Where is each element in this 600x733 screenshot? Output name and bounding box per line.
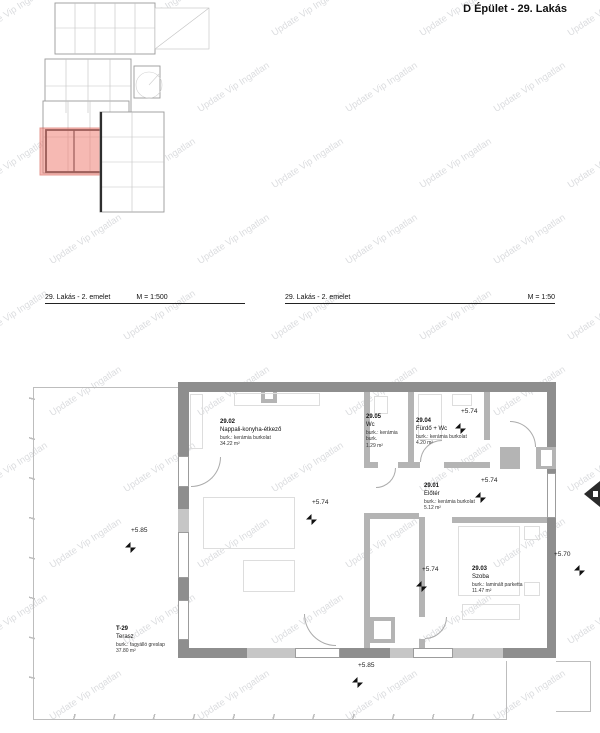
- room-id: 29.03: [472, 566, 567, 574]
- elevation-marker: +5.74: [455, 421, 466, 432]
- highlight-region: [40, 128, 110, 175]
- room-name: Előtér: [424, 491, 519, 499]
- exterior-wall: [178, 578, 189, 600]
- elevation-label: +5.85: [131, 527, 147, 534]
- furniture-outline: [374, 396, 388, 414]
- room-finish: burk.: kerámia burk.: [366, 430, 408, 443]
- furniture-outline: [462, 604, 520, 620]
- terrace-line: [506, 661, 507, 720]
- room-name: Terasz: [116, 634, 211, 642]
- furniture-outline: [452, 394, 472, 406]
- exterior-wall: [178, 487, 189, 509]
- door-arc: [376, 468, 396, 488]
- room-label-nappali: 29.02 Nappali-konyha-étkező burk.: kerám…: [220, 419, 315, 448]
- elevation-bowtie-icon: [125, 542, 136, 553]
- elevation-marker: +5.85: [352, 675, 363, 686]
- room-area: 5.12 m²: [424, 505, 519, 512]
- room-area: 1.29 m²: [366, 443, 408, 450]
- elevation-label: +5.85: [358, 662, 374, 669]
- door-arc: [191, 457, 221, 487]
- room-id: 29.05: [366, 414, 408, 422]
- window: [178, 532, 189, 578]
- room-name: Wc: [366, 422, 408, 430]
- page-title: D Épület - 29. Lakás: [463, 3, 567, 15]
- elevation-label: +5.74: [481, 477, 497, 484]
- elevation-marker: +5.85: [125, 540, 136, 551]
- caption-label: 29. Lakás - 2. emelet: [285, 294, 350, 301]
- exterior-wall-light: [390, 648, 413, 658]
- elevation-bowtie-icon: [455, 423, 466, 434]
- elevation-bowtie-icon: [475, 492, 486, 503]
- exterior-wall-light: [453, 648, 503, 658]
- elevation-marker: +5.74: [475, 490, 486, 501]
- room-id: T-29: [116, 626, 211, 634]
- interior-wall: [500, 447, 520, 469]
- wall-opening: [541, 450, 552, 466]
- terrace-line: [556, 661, 590, 662]
- furniture-outline: [524, 526, 540, 540]
- caption-scale: M = 1:500: [136, 294, 167, 301]
- interior-wall: [370, 513, 419, 519]
- furniture-outline: [234, 393, 320, 406]
- exterior-wall-light: [178, 509, 189, 532]
- elevation-label: +5.74: [312, 499, 328, 506]
- room-name: Fürdő + Wc: [416, 426, 480, 434]
- door-arc: [304, 614, 336, 646]
- room-area: 11.47 m²: [472, 588, 567, 595]
- room-id: 29.02: [220, 419, 315, 427]
- elevation-marker: +5.74: [306, 512, 317, 523]
- elevation-bowtie-icon: [574, 565, 585, 576]
- room-label-szoba: 29.03 Szoba burk.: laminált parketta 11.…: [472, 566, 567, 595]
- furniture-outline: [243, 560, 295, 592]
- room-label-terasz: T-29 Terasz burk.: fagyálló greslap 37.8…: [116, 626, 211, 655]
- room-name: Szoba: [472, 574, 567, 582]
- dimension-ticks: [29, 390, 35, 716]
- room-area: 37.80 m²: [116, 648, 211, 655]
- caption-overview: 29. Lakás - 2. emelet M = 1:500: [45, 294, 245, 304]
- room-label-wc: 29.05 Wc burk.: kerámia burk. 1.29 m²: [366, 414, 408, 449]
- exterior-wall: [340, 648, 390, 658]
- interior-wall: [444, 462, 490, 468]
- caption-main: 29. Lakás - 2. emelet M = 1:50: [285, 294, 555, 304]
- exterior-wall: [178, 382, 189, 456]
- exterior-wall-light: [247, 648, 295, 658]
- room-name: Nappali-konyha-étkező: [220, 427, 315, 435]
- elevation-label: +5.74: [461, 408, 477, 415]
- wall-opening: [374, 621, 391, 639]
- interior-wall: [452, 517, 547, 523]
- terrace-line: [556, 711, 591, 712]
- floor-plan-sheet: Update Vip IngatlanUpdate Vip IngatlanUp…: [0, 0, 600, 733]
- room-id: 29.04: [416, 418, 480, 426]
- dimension-ticks: [36, 714, 504, 720]
- elevation-marker: +5.74: [416, 579, 427, 590]
- door-arc: [510, 421, 536, 447]
- exterior-wall: [178, 382, 556, 392]
- elevation-marker: +5.70: [574, 563, 585, 574]
- furniture-outline: [203, 497, 295, 549]
- interior-wall: [419, 639, 425, 648]
- door-arc: [425, 617, 447, 639]
- elevation-label: +5.74: [422, 566, 438, 573]
- room-area: 4.20 m²: [416, 440, 480, 447]
- elevation-bowtie-icon: [306, 514, 317, 525]
- terrace-line: [590, 661, 591, 712]
- room-label-furdo: 29.04 Fürdő + Wc burk.: kerámia burkolat…: [416, 418, 480, 447]
- interior-wall: [484, 392, 490, 440]
- caption-label: 29. Lakás - 2. emelet: [45, 294, 110, 301]
- window: [178, 456, 189, 487]
- window: [413, 648, 453, 658]
- elevation-label: +5.70: [554, 551, 570, 558]
- window: [295, 648, 340, 658]
- furniture-outline: [190, 394, 203, 449]
- room-id: 29.01: [424, 483, 519, 491]
- interior-wall: [408, 392, 414, 462]
- terrace-line: [33, 387, 179, 388]
- window: [547, 473, 556, 518]
- caption-scale: M = 1:50: [528, 294, 555, 301]
- elevation-bowtie-icon: [416, 581, 427, 592]
- overview-plan: [28, 2, 213, 214]
- room-label-eloter: 29.01 Előtér burk.: kerámia burkolat 5.1…: [424, 483, 519, 512]
- elevation-bowtie-icon: [352, 677, 363, 688]
- room-area: 34.22 m²: [220, 441, 315, 448]
- section-marker-icon: [584, 481, 600, 512]
- interior-wall: [398, 462, 420, 468]
